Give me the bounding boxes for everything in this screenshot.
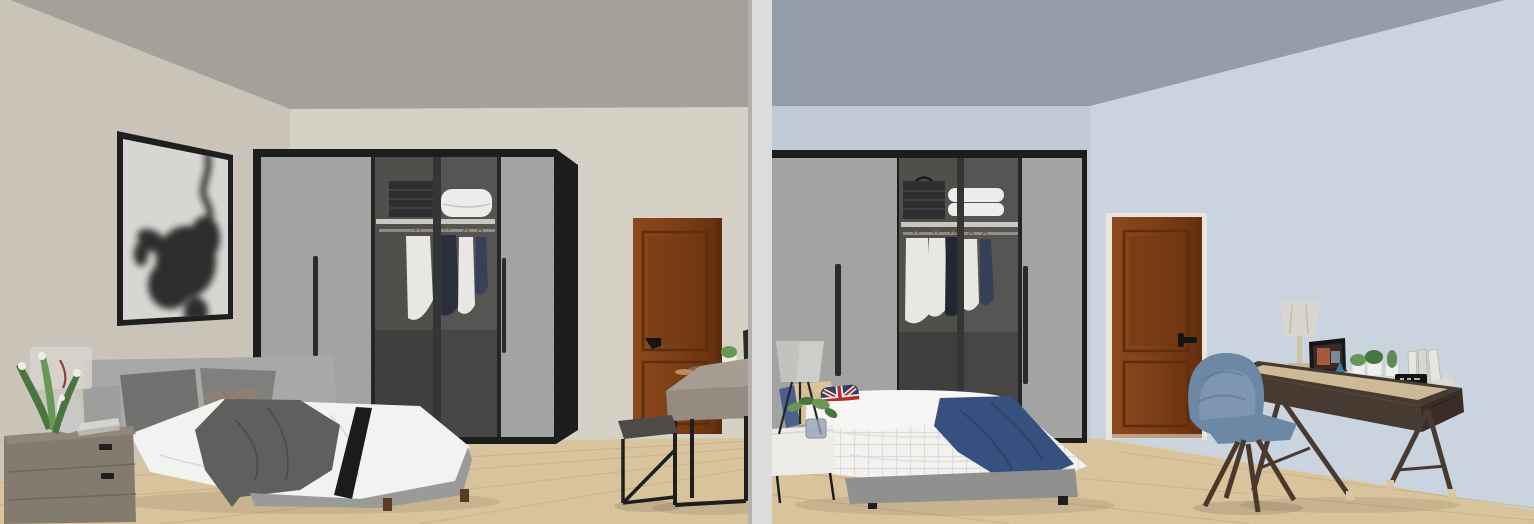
scene-right: [772, 0, 1534, 524]
leg-tip: [1386, 480, 1394, 489]
lamp-shade: [1280, 302, 1320, 336]
divider-bar: [752, 0, 772, 524]
divider-edge: [748, 0, 752, 524]
leg-tip: [1448, 489, 1456, 498]
chair-shadow: [1193, 501, 1303, 515]
ink-blob: [134, 242, 148, 266]
flower: [18, 362, 26, 370]
door-texture: [1022, 158, 1082, 438]
screen-panel: [1331, 351, 1340, 363]
wardrobe-handle-left[interactable]: [313, 256, 318, 356]
door-edge: [1018, 158, 1022, 438]
drawer-handle[interactable]: [99, 444, 112, 450]
planter-plant: [1350, 354, 1366, 366]
ink-core: [168, 248, 208, 296]
scene-divider: [748, 0, 772, 524]
wardrobe-handle-right[interactable]: [502, 258, 506, 353]
door-handle-rose: [1178, 333, 1184, 347]
glass-vase: [806, 419, 826, 438]
flower: [38, 352, 46, 360]
leg-tip: [1346, 491, 1354, 500]
door-edge: [371, 157, 375, 437]
glass-door-frame: [433, 157, 441, 437]
bed-leg: [460, 489, 469, 502]
glass-tint: [441, 157, 497, 437]
door-edge: [497, 157, 501, 437]
door-threshold: [1110, 434, 1204, 439]
planter-plant: [1365, 350, 1383, 364]
bed-leg: [1058, 496, 1068, 505]
screen-photo: [1317, 348, 1330, 365]
wardrobe-handle-right[interactable]: [1023, 266, 1028, 384]
comparison-canvas: [0, 0, 1534, 524]
drawer-handle[interactable]: [101, 473, 114, 479]
bed-leg: [383, 498, 392, 511]
scene-left: [0, 0, 772, 524]
wardrobe-handle-left[interactable]: [835, 264, 841, 376]
hanging-shirt-white: [928, 238, 948, 317]
door-panel-inset: [648, 237, 702, 345]
flower: [59, 395, 65, 401]
door-trim-left: [1106, 213, 1112, 440]
door-panel-inset: [1129, 236, 1183, 346]
desk-apron: [666, 386, 751, 421]
lamp-stem: [1297, 336, 1302, 363]
desk-plant: [721, 346, 737, 358]
hanging-shirt-white: [406, 236, 433, 320]
hanging-top-white: [905, 238, 932, 323]
bed-leg: [868, 503, 877, 509]
bedroom-comparison-stage: [0, 0, 1534, 524]
flower: [73, 369, 81, 377]
door-texture: [501, 157, 554, 437]
left-wall-artwork[interactable]: [117, 131, 233, 327]
cactus: [1387, 350, 1397, 368]
